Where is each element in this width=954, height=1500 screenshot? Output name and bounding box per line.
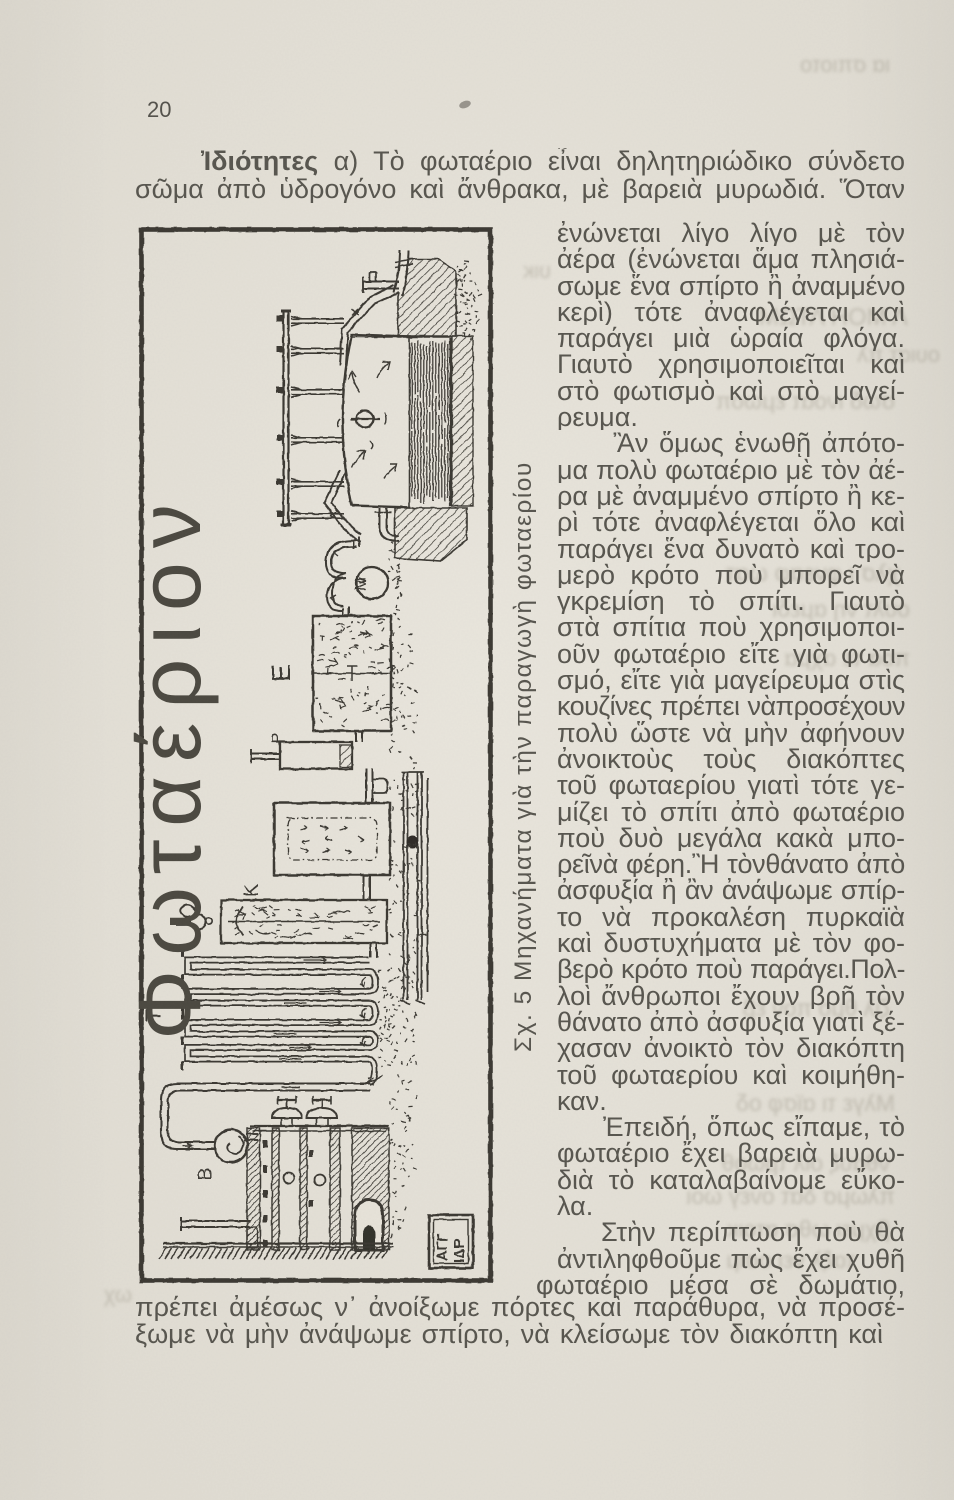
svg-text:Φωταέριον: Φωταέριον [120, 490, 219, 1040]
svg-text:Β: Β [195, 1168, 215, 1180]
svg-text:Σχ. 5 Μηχανήματα γιὰ τὴν παραγ: Σχ. 5 Μηχανήματα γιὰ τὴν παραγωγὴ φωταερ… [510, 461, 537, 1052]
svg-text:ΙΔΡ: ΙΔΡ [452, 1239, 468, 1263]
svg-text:ΑΓΓ: ΑΓΓ [435, 1233, 451, 1261]
svg-text:Ρ: Ρ [268, 733, 287, 744]
svg-text:Ε: Ε [266, 665, 296, 682]
svg-text:Κ: Κ [241, 883, 263, 897]
